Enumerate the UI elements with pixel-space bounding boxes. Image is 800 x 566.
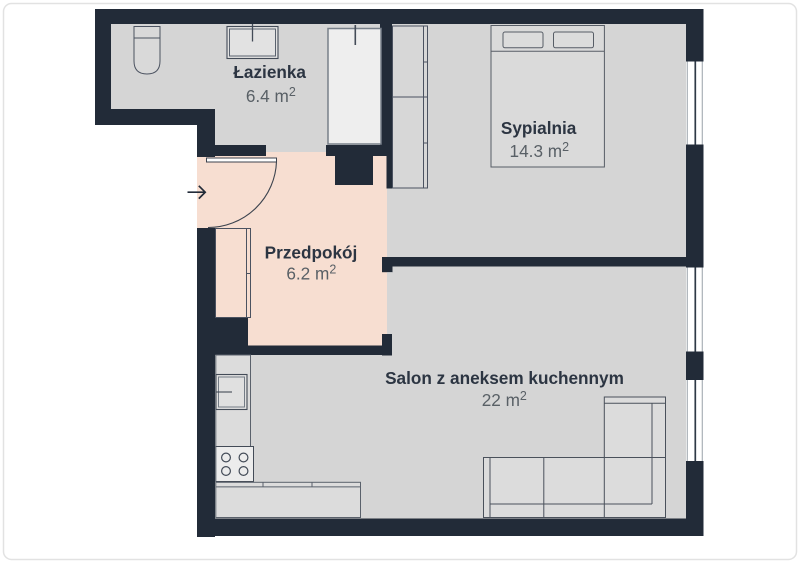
svg-text:Salon z aneksem kuchennym: Salon z aneksem kuchennym [385,368,624,388]
svg-text:Łazienka: Łazienka [233,62,306,82]
svg-text:6.4 m2: 6.4 m2 [246,85,296,106]
svg-text:6.2 m2: 6.2 m2 [286,263,336,284]
svg-text:14.3 m2: 14.3 m2 [510,140,570,161]
svg-text:Przedpokój: Przedpokój [265,243,358,263]
svg-text:Sypialnia: Sypialnia [501,118,577,138]
